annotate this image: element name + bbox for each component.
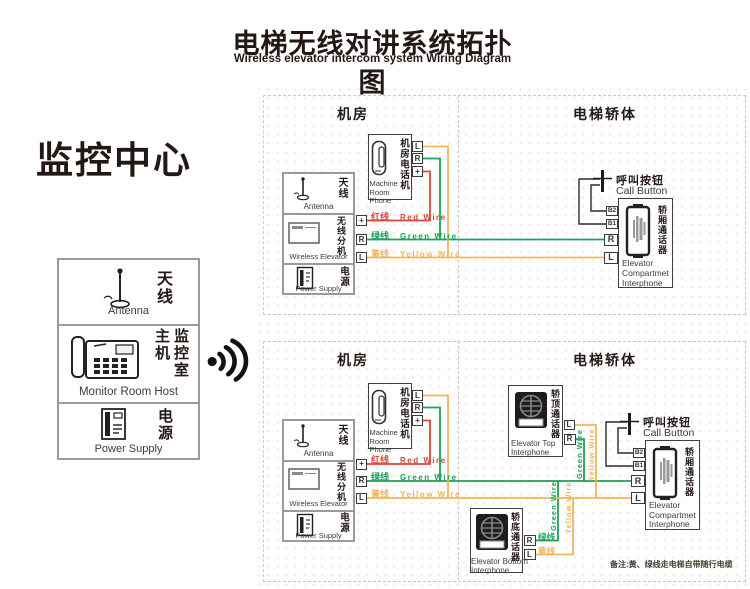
elevator-top-interphone-en: Elevator Top Interphone [511, 439, 563, 457]
top-machine-phone-label-en: Machine Room Phone [370, 180, 412, 206]
wireless-signal-icon [201, 328, 260, 390]
top-call-button-label-en: Call Button [616, 185, 667, 197]
elevator-bottom-interphone-en: Elevator Bottom Interphone [471, 557, 529, 575]
monitor-divider-2 [57, 402, 200, 404]
top-unit-terminal-plus: + [356, 215, 367, 226]
v-yellow-wire-label-upper: Yellow Wire [587, 428, 596, 481]
monitor-divider-1 [57, 324, 200, 326]
bottom-machine-room-header: 机房 [325, 350, 381, 370]
top-unit-antenna-zh: 天线 [334, 177, 349, 203]
bot-call-button-label-en: Call Button [643, 427, 694, 439]
v-green-wire-label-upper: Green Wire [575, 429, 584, 479]
monitor-antenna-label-en: Antenna [58, 305, 199, 317]
bot-compartment-label-en: Elevator Compartmet Interphone [649, 501, 701, 530]
bot-unit-terminal-plus: + [356, 459, 367, 470]
top-unit-terminal-L: L [356, 252, 367, 263]
antenna-icon [100, 266, 136, 310]
top-red-wire-label: 红线 Red Wire [371, 210, 447, 223]
top-phone-terminal-L: L [412, 141, 423, 152]
diagram-note: 备注:黄、绿线走电梯自带随行电缆 [610, 559, 733, 570]
top-yellow-wire-label: 黄线 Yellow Wire [371, 247, 461, 260]
elevator-bottom-terminal-L: L [524, 549, 536, 560]
bot-unit-power-en: Power Supply [283, 531, 354, 540]
top-unit-divider-2 [282, 263, 355, 265]
bot-unit-antenna-en: Antenna [283, 449, 354, 458]
elevator-bottom-terminal-R: R [524, 535, 536, 546]
v-green-wire-label-lower: Green Wire [549, 481, 558, 531]
top-unit-antenna-en: Antenna [283, 202, 354, 211]
bot-phone-terminal-L: L [412, 390, 423, 401]
monitor-center-title: 监控中心 [36, 130, 192, 184]
bot-compartment-label-zh: 轿厢通话器 [683, 447, 696, 503]
bot-compartment-terminal-R: R [631, 475, 645, 487]
bot-unit-antenna-zh: 天线 [334, 424, 349, 450]
elevator-top-terminal-L: L [564, 420, 575, 430]
bot-yellow-wire-label: 黄线 Yellow Wire [371, 487, 461, 500]
bot-phone-terminal-R: R [412, 402, 423, 413]
wireless-unit-icon [288, 222, 320, 244]
top-unit-terminal-R: R [356, 234, 367, 245]
top-compartment-terminal-B2: B2 [606, 206, 618, 216]
top-compartment-label-en: Elevator Compartmet Interphone [622, 258, 674, 288]
top-unit-power-en: Power Supply [283, 284, 354, 293]
bot-compartment-terminal-L: L [631, 492, 645, 504]
monitor-power-label-zh: 电源 [154, 408, 175, 448]
top-unit-divider-1 [282, 213, 355, 215]
desk-phone-icon [70, 332, 144, 382]
bottom-diagram-divider [458, 341, 459, 580]
handset-icon [371, 389, 391, 427]
top-diagram-divider [458, 95, 459, 313]
bot-machine-phone-label-en: Machine Room Phone [370, 429, 412, 455]
bottom-yellow-short-label: 黄线 [538, 545, 555, 557]
top-green-wire-label: 绿线 Green Wire [371, 229, 458, 242]
bot-red-wire-label: 红线 Red Wire [371, 453, 447, 466]
wireless-unit-icon [288, 468, 320, 490]
page-subtitle: Wireless elevator intercom system Wiring… [230, 53, 515, 65]
monitor-host-label-zh: 监控室主机 [150, 328, 190, 384]
bottom-green-short-label: 绿线 [538, 531, 555, 543]
top-compartment-terminal-B1: B1 [606, 219, 618, 229]
bot-green-wire-label: 绿线 Green Wire [371, 470, 458, 483]
top-phone-terminal-R: R [412, 153, 423, 164]
handset-icon [371, 140, 391, 178]
bot-unit-terminal-R: R [356, 476, 367, 487]
bot-unit-terminal-L: L [356, 493, 367, 504]
bottom-car-header: 电梯轿体 [570, 350, 640, 370]
top-compartment-label-zh: 轿厢通话器 [656, 205, 669, 261]
speaker-icon [475, 513, 509, 559]
elevator-top-interphone-zh: 轿顶通话器 [549, 389, 562, 443]
top-machine-room-header: 机房 [325, 104, 381, 124]
bot-compartment-terminal-B1: B1 [633, 461, 645, 471]
bot-phone-terminal-plus: + [412, 415, 423, 426]
top-phone-terminal-plus: + [412, 166, 423, 177]
bot-unit-wireless-en: Wireless Elevator [283, 499, 354, 508]
intercom-icon [650, 446, 680, 500]
top-compartment-terminal-L: L [604, 252, 618, 264]
monitor-host-label-en: Monitor Room Host [58, 386, 199, 398]
intercom-icon [623, 204, 653, 258]
top-compartment-terminal-R: R [604, 234, 618, 246]
elevator-top-terminal-R: R [564, 434, 576, 445]
v-yellow-wire-label-lower: Yellow Wire [564, 481, 573, 534]
speaker-icon [514, 391, 548, 437]
bot-compartment-terminal-B2: B2 [633, 448, 645, 458]
antenna-icon [292, 423, 312, 449]
antenna-icon [292, 176, 312, 202]
top-car-header: 电梯轿体 [570, 104, 640, 124]
monitor-power-label-en: Power Supply [58, 443, 199, 455]
power-supply-icon [100, 407, 128, 441]
top-unit-wireless-en: Wireless Elevator [283, 252, 354, 261]
